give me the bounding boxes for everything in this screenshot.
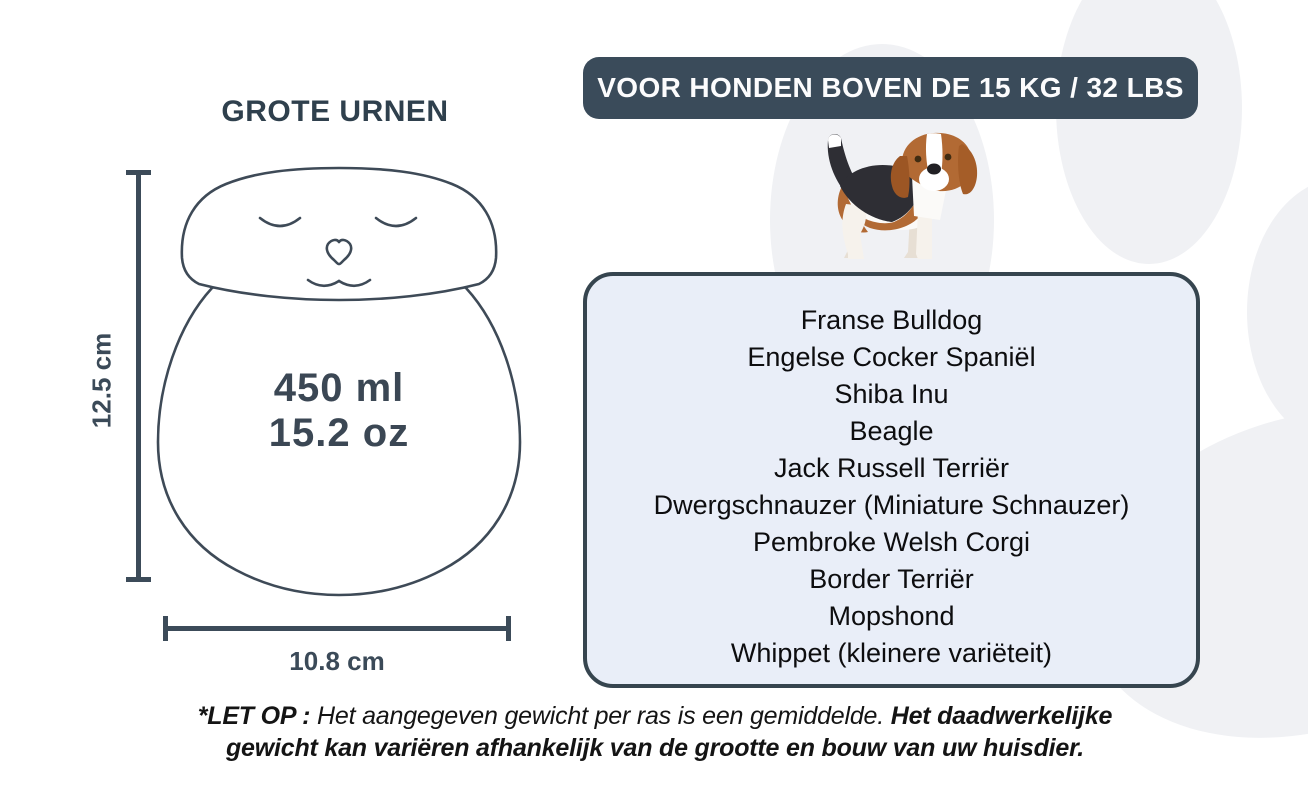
breed-item: Mopshond xyxy=(587,598,1196,635)
paw-toe-shape xyxy=(1247,178,1308,446)
footnote-regular-text: Het aangegeven gewicht per ras is een ge… xyxy=(317,702,884,730)
volume-oz: 15.2 oz xyxy=(148,411,530,456)
breed-item: Border Terriër xyxy=(587,561,1196,598)
breed-item: Jack Russell Terriër xyxy=(587,450,1196,487)
height-dimension-label: 12.5 cm xyxy=(87,318,118,444)
breed-item: Shiba Inu xyxy=(587,376,1196,413)
height-dimension-line xyxy=(136,172,141,582)
urn-section-title: GROTE URNEN xyxy=(160,95,510,129)
breed-list: Franse BulldogEngelse Cocker SpaniëlShib… xyxy=(587,276,1196,672)
height-dimension-cap xyxy=(126,577,151,582)
beagle-illustration-icon xyxy=(790,124,982,266)
width-dimension-line xyxy=(163,626,511,631)
footnote-label: *LET OP : xyxy=(198,702,311,730)
weight-class-banner: VOOR HONDEN BOVEN DE 15 KG / 32 LBS xyxy=(583,57,1198,119)
width-dimension-cap xyxy=(506,616,511,641)
volume-ml: 450 ml xyxy=(148,366,530,411)
breed-item: Pembroke Welsh Corgi xyxy=(587,524,1196,561)
breed-list-box: Franse BulldogEngelse Cocker SpaniëlShib… xyxy=(583,272,1200,688)
breed-item: Beagle xyxy=(587,413,1196,450)
breed-item: Dwergschnauzer (Miniature Schnauzer) xyxy=(587,487,1196,524)
infographic-page: GROTE URNEN 450 ml 15.2 oz 12.5 cm 10.8 … xyxy=(0,0,1308,788)
weight-class-banner-label: VOOR HONDEN BOVEN DE 15 KG / 32 LBS xyxy=(597,72,1184,104)
urn-volume: 450 ml 15.2 oz xyxy=(148,366,530,456)
height-dimension-cap xyxy=(126,170,151,175)
width-dimension-cap xyxy=(163,616,168,641)
width-dimension-label: 10.8 cm xyxy=(163,646,511,677)
breed-item: Engelse Cocker Spaniël xyxy=(587,339,1196,376)
breed-item: Whippet (kleinere variëteit) xyxy=(587,635,1196,672)
footnote: *LET OP : Het aangegeven gewicht per ras… xyxy=(185,700,1125,764)
paw-toe-shape xyxy=(1056,0,1242,264)
breed-item: Franse Bulldog xyxy=(587,302,1196,339)
